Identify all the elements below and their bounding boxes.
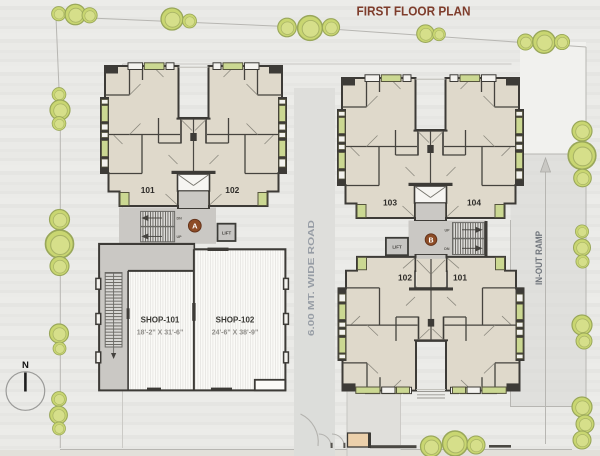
svg-text:LIFT: LIFT [222, 231, 232, 236]
svg-text:N: N [22, 360, 29, 371]
svg-text:DN: DN [444, 247, 450, 251]
svg-text:IN-OUT RAMP: IN-OUT RAMP [534, 231, 544, 285]
svg-text:DN: DN [177, 217, 183, 221]
svg-text:UP: UP [177, 235, 183, 239]
svg-text:104: 104 [467, 197, 481, 207]
svg-text:UP: UP [445, 228, 451, 232]
svg-text:102: 102 [225, 185, 239, 195]
svg-text:6.00 MT. WIDE ROAD: 6.00 MT. WIDE ROAD [307, 220, 316, 336]
svg-text:LIFT: LIFT [392, 245, 402, 250]
svg-text:SHOP-102: SHOP-102 [216, 316, 255, 325]
svg-text:24'-6" X 38'-9": 24'-6" X 38'-9" [212, 330, 259, 337]
svg-text:101: 101 [141, 185, 155, 195]
svg-text:A: A [192, 222, 198, 231]
svg-text:103: 103 [383, 197, 397, 207]
svg-text:FIRST FLOOR PLAN: FIRST FLOOR PLAN [357, 4, 471, 19]
svg-text:102: 102 [398, 273, 412, 283]
svg-text:101: 101 [453, 273, 467, 283]
svg-text:B: B [428, 237, 433, 244]
svg-text:18'-2" X 31'-6": 18'-2" X 31'-6" [137, 330, 184, 337]
svg-text:SHOP-101: SHOP-101 [141, 316, 180, 325]
